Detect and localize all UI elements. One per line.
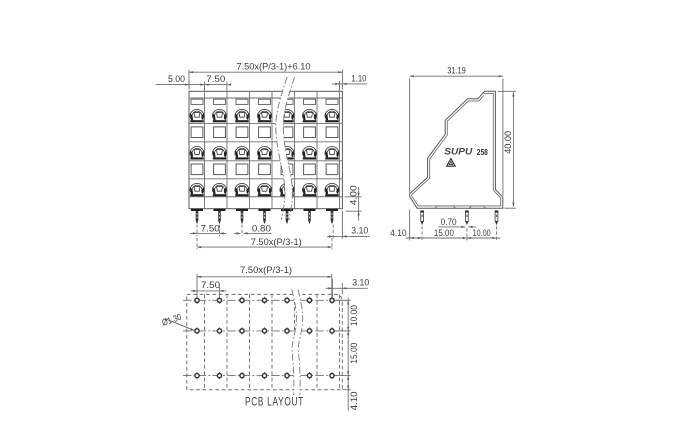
svg-text:4.10: 4.10 [390, 228, 407, 239]
svg-text:4.00: 4.00 [348, 185, 359, 205]
svg-text:PCB LAYOUT: PCB LAYOUT [245, 396, 304, 409]
svg-text:0.70: 0.70 [441, 217, 457, 228]
svg-text:5.00: 5.00 [168, 74, 185, 85]
svg-text:7.50: 7.50 [201, 280, 220, 291]
svg-text:31.19: 31.19 [447, 65, 466, 76]
svg-text:7.50x(P/3-1): 7.50x(P/3-1) [251, 237, 302, 248]
svg-text:10.00: 10.00 [349, 305, 360, 326]
svg-text:SUPU: SUPU [444, 147, 472, 157]
svg-text:10.00: 10.00 [473, 228, 491, 239]
svg-text:1.10: 1.10 [351, 74, 366, 85]
svg-text:15.00: 15.00 [349, 343, 360, 364]
svg-text:258: 258 [477, 147, 488, 157]
svg-text:4.10: 4.10 [349, 391, 360, 410]
svg-text:7.50x(P/3-1)+6.10: 7.50x(P/3-1)+6.10 [237, 61, 311, 72]
svg-text:7.50: 7.50 [201, 223, 220, 234]
svg-text:7.50: 7.50 [206, 74, 225, 85]
svg-text:3.10: 3.10 [352, 278, 369, 289]
svg-text:40.00: 40.00 [503, 131, 514, 154]
svg-text:15.00: 15.00 [434, 228, 454, 239]
svg-text:7.50x(P/3-1): 7.50x(P/3-1) [240, 265, 292, 276]
svg-text:0.80: 0.80 [252, 223, 271, 234]
svg-text:3.10: 3.10 [351, 226, 368, 237]
